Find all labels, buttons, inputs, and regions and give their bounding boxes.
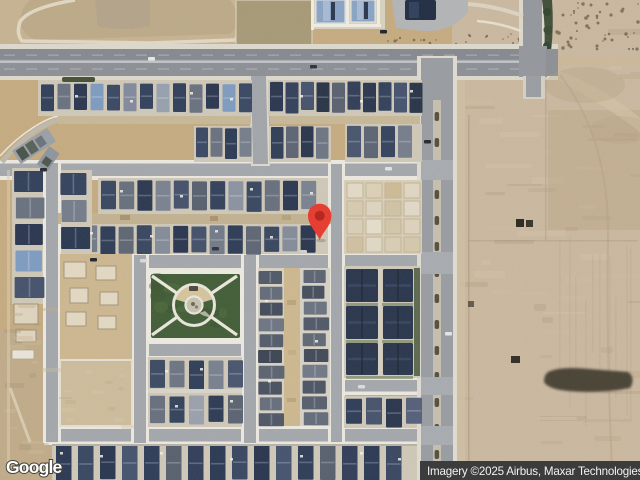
svg-text:Google: Google <box>6 457 63 477</box>
svg-text:Imagery ©2025 Airbus, Maxar Te: Imagery ©2025 Airbus, Maxar Technologies <box>427 465 640 478</box>
